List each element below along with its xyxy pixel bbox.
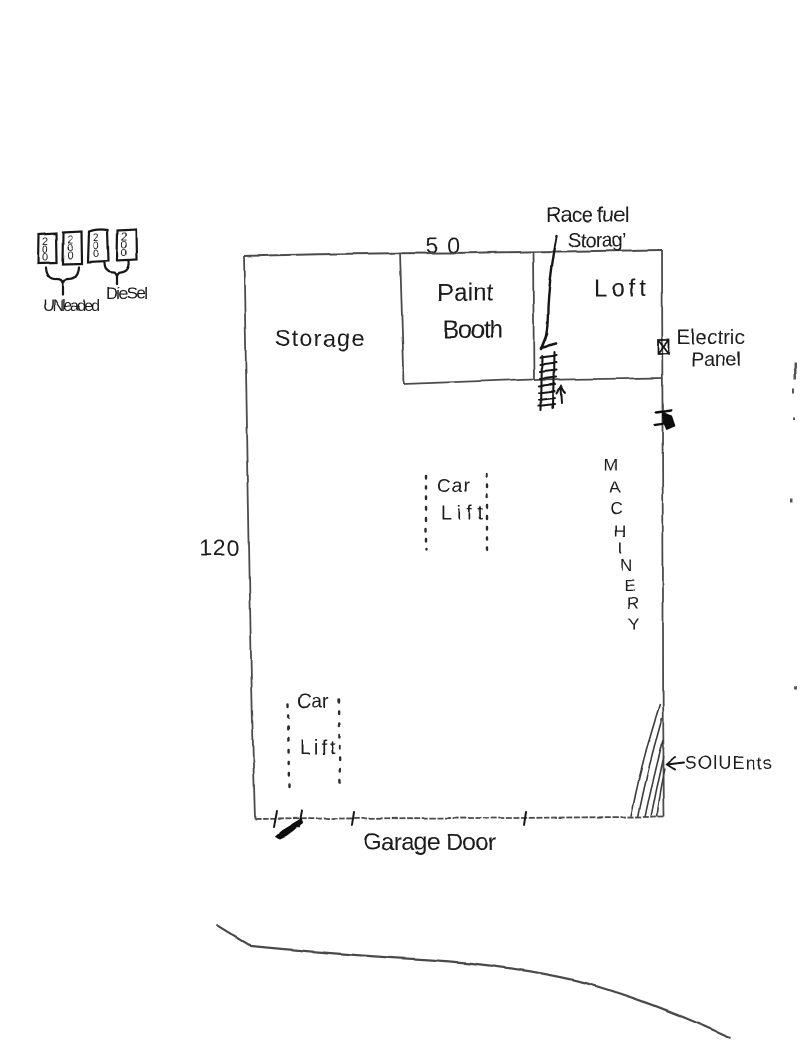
svg-text:120: 120 — [199, 535, 240, 561]
svg-text:Y: Y — [628, 615, 639, 634]
svg-text:Lift: Lift — [300, 737, 335, 759]
svg-text:DieSel: DieSel — [106, 284, 148, 303]
svg-text:Race fuel: Race fuel — [546, 204, 629, 227]
svg-text:R: R — [627, 594, 639, 613]
svg-text:UNleaded: UNleaded — [43, 298, 100, 315]
svg-text:Car: Car — [297, 691, 329, 713]
svg-text:Panel: Panel — [691, 349, 741, 371]
svg-text:Storage: Storage — [275, 325, 364, 351]
svg-text:Paint: Paint — [437, 279, 494, 307]
svg-text:A: A — [609, 478, 621, 497]
svg-text:50: 50 — [426, 233, 468, 258]
svg-text:0: 0 — [42, 252, 48, 264]
svg-text:Storag’: Storag’ — [568, 230, 627, 252]
svg-text:0: 0 — [93, 248, 99, 260]
svg-text:Lift: Lift — [441, 503, 484, 524]
svg-text:Booth: Booth — [443, 316, 503, 344]
svg-text:Electric: Electric — [677, 327, 745, 349]
svg-text:C: C — [610, 499, 622, 518]
svg-text:N: N — [620, 556, 632, 575]
svg-text:0: 0 — [67, 250, 73, 262]
svg-text:0: 0 — [121, 247, 127, 259]
svg-text:M: M — [604, 456, 618, 475]
svg-text:SOlUEnts: SOlUEnts — [685, 753, 772, 773]
svg-text:Garage Door: Garage Door — [363, 829, 496, 856]
svg-text:E: E — [624, 576, 635, 595]
svg-text:Car: Car — [437, 476, 471, 497]
svg-text:Loft: Loft — [594, 275, 646, 302]
